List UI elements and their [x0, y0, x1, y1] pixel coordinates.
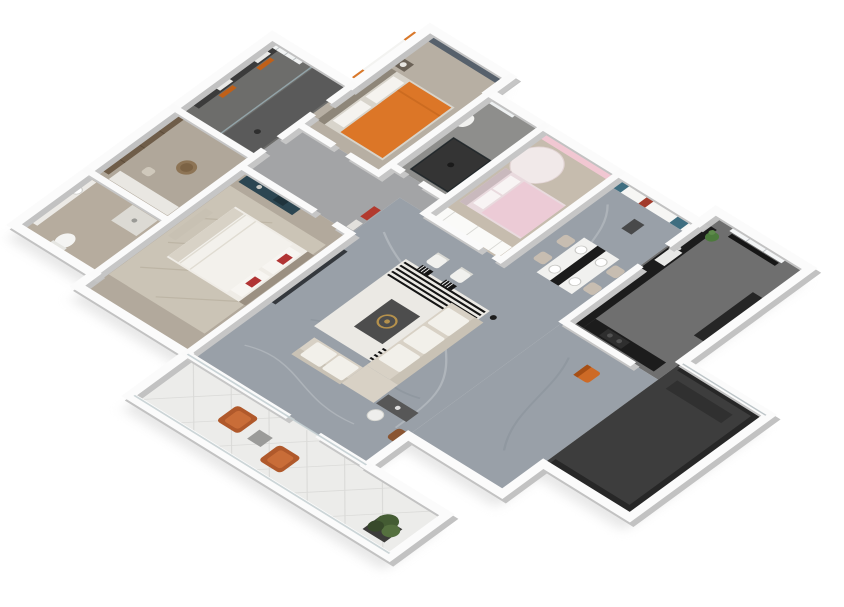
floors-and-furniture: [0, 0, 844, 607]
floor-plan-canvas: [0, 0, 844, 607]
floor-plan-render: [0, 0, 844, 607]
